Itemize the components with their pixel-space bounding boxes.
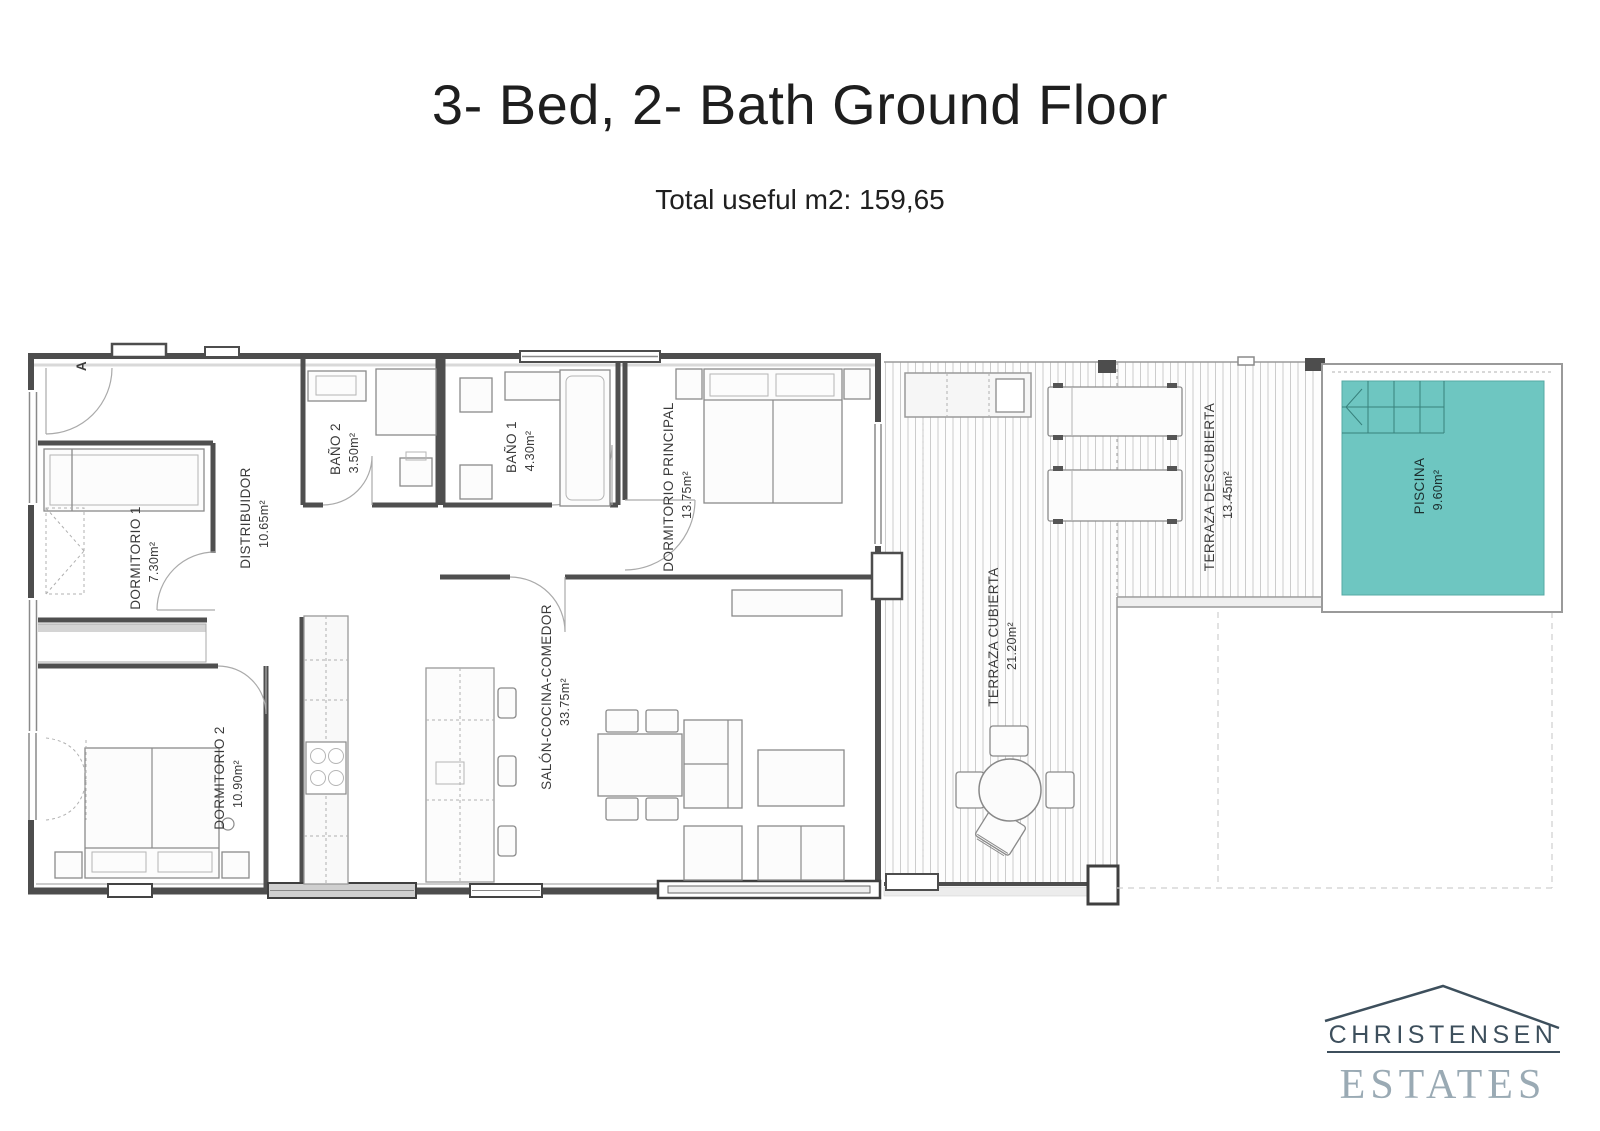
room-label-piscina: PISCINA	[1412, 458, 1427, 515]
lounge-set	[684, 590, 844, 880]
room-label-terraza-cubierta: TERRAZA CUBIERTA	[986, 567, 1001, 706]
room-area-terraza-descubierta: 13.45m²	[1221, 471, 1235, 519]
dining-table	[598, 734, 682, 796]
outdoor-counter	[905, 373, 1031, 417]
window-box	[872, 553, 902, 599]
room-label-bano-1: BAÑO 1	[504, 421, 519, 473]
terrace-column	[1088, 866, 1118, 904]
sun-lounger-1	[1048, 383, 1182, 440]
room-label-salon: SALÓN-COCINA-COMEDOR	[539, 604, 554, 790]
top-window-small	[205, 347, 239, 357]
sun-lounger-2	[1048, 466, 1182, 524]
room-area-salon: 33.75m²	[558, 678, 572, 726]
pool-area: PISCINA 9.60m²	[1322, 364, 1562, 612]
coffee-table	[758, 750, 844, 806]
room-label-terraza-descubierta: TERRAZA DESCUBIERTA	[1202, 403, 1217, 571]
round-table	[979, 759, 1041, 821]
entrance-marker: A	[74, 361, 89, 371]
dining-set	[598, 710, 682, 820]
kitchen-island	[426, 668, 516, 882]
room-label-dormitorio-principal: DORMITORIO PRINCIPAL	[661, 402, 676, 572]
kitchen-counter	[304, 616, 348, 884]
bed-dormitorio-1	[44, 449, 204, 511]
roof-edge-tick	[1238, 357, 1254, 365]
roof-edge-jut	[1098, 360, 1116, 373]
logo: CHRISTENSEN ESTATES	[1325, 986, 1560, 1108]
room-area-dormitorio-1: 7.30m²	[147, 542, 161, 583]
page: 3- Bed, 2- Bath Ground Floor Total usefu…	[0, 0, 1600, 1131]
room-area-bano-1: 4.30m²	[523, 431, 537, 472]
room-area-terraza-cubierta: 21.20m²	[1005, 622, 1019, 670]
armchair	[684, 826, 742, 880]
logo-name: CHRISTENSEN	[1329, 1021, 1558, 1049]
terrace-decking	[884, 357, 1325, 904]
room-area-bano-2: 3.50m²	[347, 433, 361, 474]
stove	[306, 742, 346, 794]
room-area-dormitorio-2: 10.90m²	[231, 760, 245, 808]
bed-master	[676, 369, 870, 503]
room-area-distribuidor: 10.65m²	[257, 500, 271, 548]
room-label-dormitorio-1: DORMITORIO 1	[128, 506, 143, 610]
room-area-dormitorio-principal: 13.75m²	[680, 471, 694, 519]
room-label-bano-2: BAÑO 2	[328, 423, 343, 475]
room-area-piscina: 9.60m²	[1431, 470, 1445, 511]
logo-type: ESTATES	[1340, 1062, 1547, 1108]
plot-boundary	[1117, 612, 1552, 888]
wardrobe-dormitorio-2	[46, 738, 86, 820]
bottom-window-1	[108, 884, 152, 897]
room-label-distribuidor: DISTRIBUIDOR	[238, 467, 253, 569]
room-label-dormitorio-2: DORMITORIO 2	[212, 726, 227, 830]
floor-plan: PISCINA 9.60m²	[0, 0, 1600, 1131]
terrace-corner-window	[886, 874, 938, 890]
wardrobe-dormitorio-1	[46, 508, 84, 594]
sideboard	[732, 590, 842, 616]
entrance-canopy	[112, 344, 166, 357]
